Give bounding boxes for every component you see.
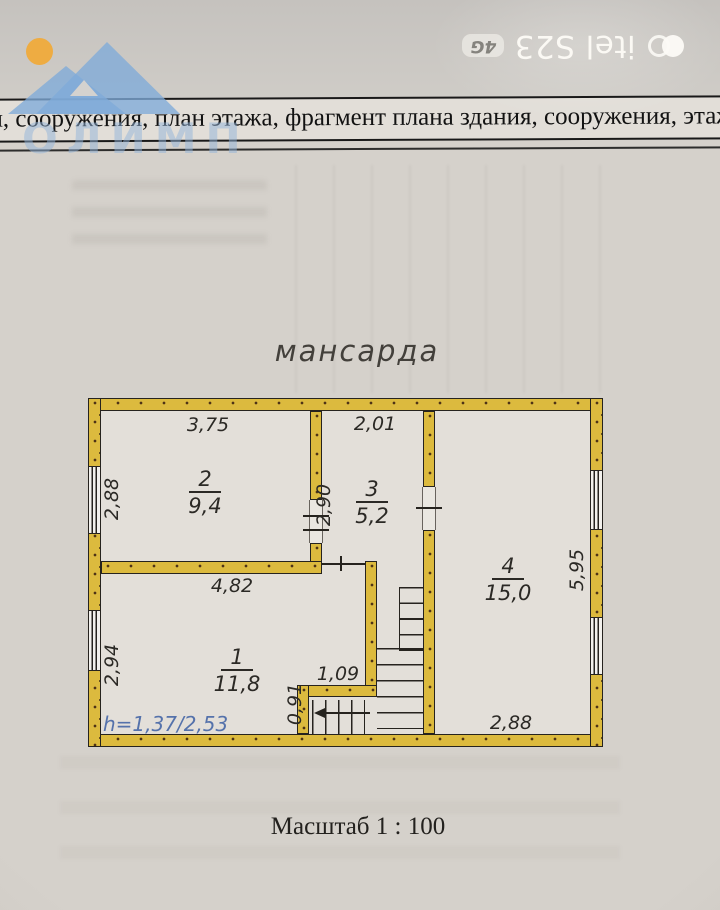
- solid-circle-icon: [662, 35, 684, 57]
- window-room1-left: [88, 610, 101, 671]
- stair-treads-middle: [377, 648, 423, 729]
- opening-tick: [340, 556, 342, 571]
- olimp-stamp: ОЛИМП: [8, 26, 218, 166]
- wall-right: [590, 398, 603, 747]
- room-area: 5,2: [332, 505, 412, 527]
- room-number: 4: [492, 555, 523, 580]
- dimension-stair-top: 1,09: [317, 663, 359, 685]
- room-area: 9,4: [165, 495, 245, 517]
- dimension-room2-top: 3,75: [187, 414, 229, 436]
- dimension-room1-top: 4,82: [211, 575, 253, 597]
- room-label-4: 4 15,0: [468, 555, 548, 604]
- itel-lens-icon: [646, 33, 684, 59]
- stair-direction-arrow-icon: [314, 708, 325, 718]
- wall-top: [88, 398, 603, 411]
- window-room4-right-upper: [590, 470, 603, 530]
- room-area: 15,0: [468, 582, 548, 604]
- device-name-text: itel S23: [514, 28, 635, 64]
- dimension-room3-top: 2,01: [354, 413, 396, 435]
- stair-opening-line: [322, 563, 365, 565]
- dimension-right-side: 5,95: [566, 549, 588, 591]
- stair-direction-line: [318, 712, 370, 714]
- dimension-stair-side: 0,91: [284, 683, 306, 725]
- door-tick: [303, 529, 329, 531]
- floor-plan-drawing: 2 9,4 3 5,2 4 15,0 1 11,8 3,75 2,01 2,88…: [88, 398, 603, 747]
- room-label-1: 1 11,8: [197, 646, 277, 695]
- window-room2-left: [88, 466, 101, 534]
- photographed-floor-plan-page: { "camera_watermark": { "device": "itel …: [0, 0, 720, 910]
- stairwell-landing-top-wall: [297, 685, 377, 697]
- room-number: 3: [356, 478, 387, 503]
- stair-treads-upper: [399, 587, 424, 651]
- scale-caption: Масштаб 1 : 100: [271, 813, 445, 841]
- partition-room3-4-lower: [423, 530, 435, 734]
- dimension-left-upper: 2,88: [101, 478, 123, 520]
- floor-title: мансарда: [275, 334, 440, 368]
- stamp-company-name: ОЛИМП: [22, 114, 250, 163]
- stairwell-left-wall: [365, 561, 377, 688]
- door-tick: [416, 507, 442, 509]
- room-area: 11,8: [197, 673, 277, 695]
- room-number: 1: [221, 646, 252, 671]
- dimension-room4-bottom: 2,88: [490, 712, 532, 734]
- bleed-through-artifact: [72, 180, 267, 250]
- dimension-partition: 2,90: [313, 484, 335, 526]
- room-label-2: 2 9,4: [165, 468, 245, 517]
- dimension-left-lower: 2,94: [101, 644, 123, 686]
- room-label-3: 3 5,2: [332, 478, 412, 527]
- mountain-icon: [8, 36, 198, 116]
- camera-watermark: itel S23 4G: [440, 14, 706, 78]
- network-badge: 4G: [462, 35, 504, 58]
- room-number: 2: [189, 468, 220, 493]
- partition-room1-2: [101, 561, 322, 574]
- wall-left: [88, 398, 101, 747]
- window-room4-right-lower: [590, 617, 603, 675]
- ceiling-height-note: h=1,37/2,53: [103, 712, 228, 736]
- partition-room3-4-upper: [423, 411, 435, 487]
